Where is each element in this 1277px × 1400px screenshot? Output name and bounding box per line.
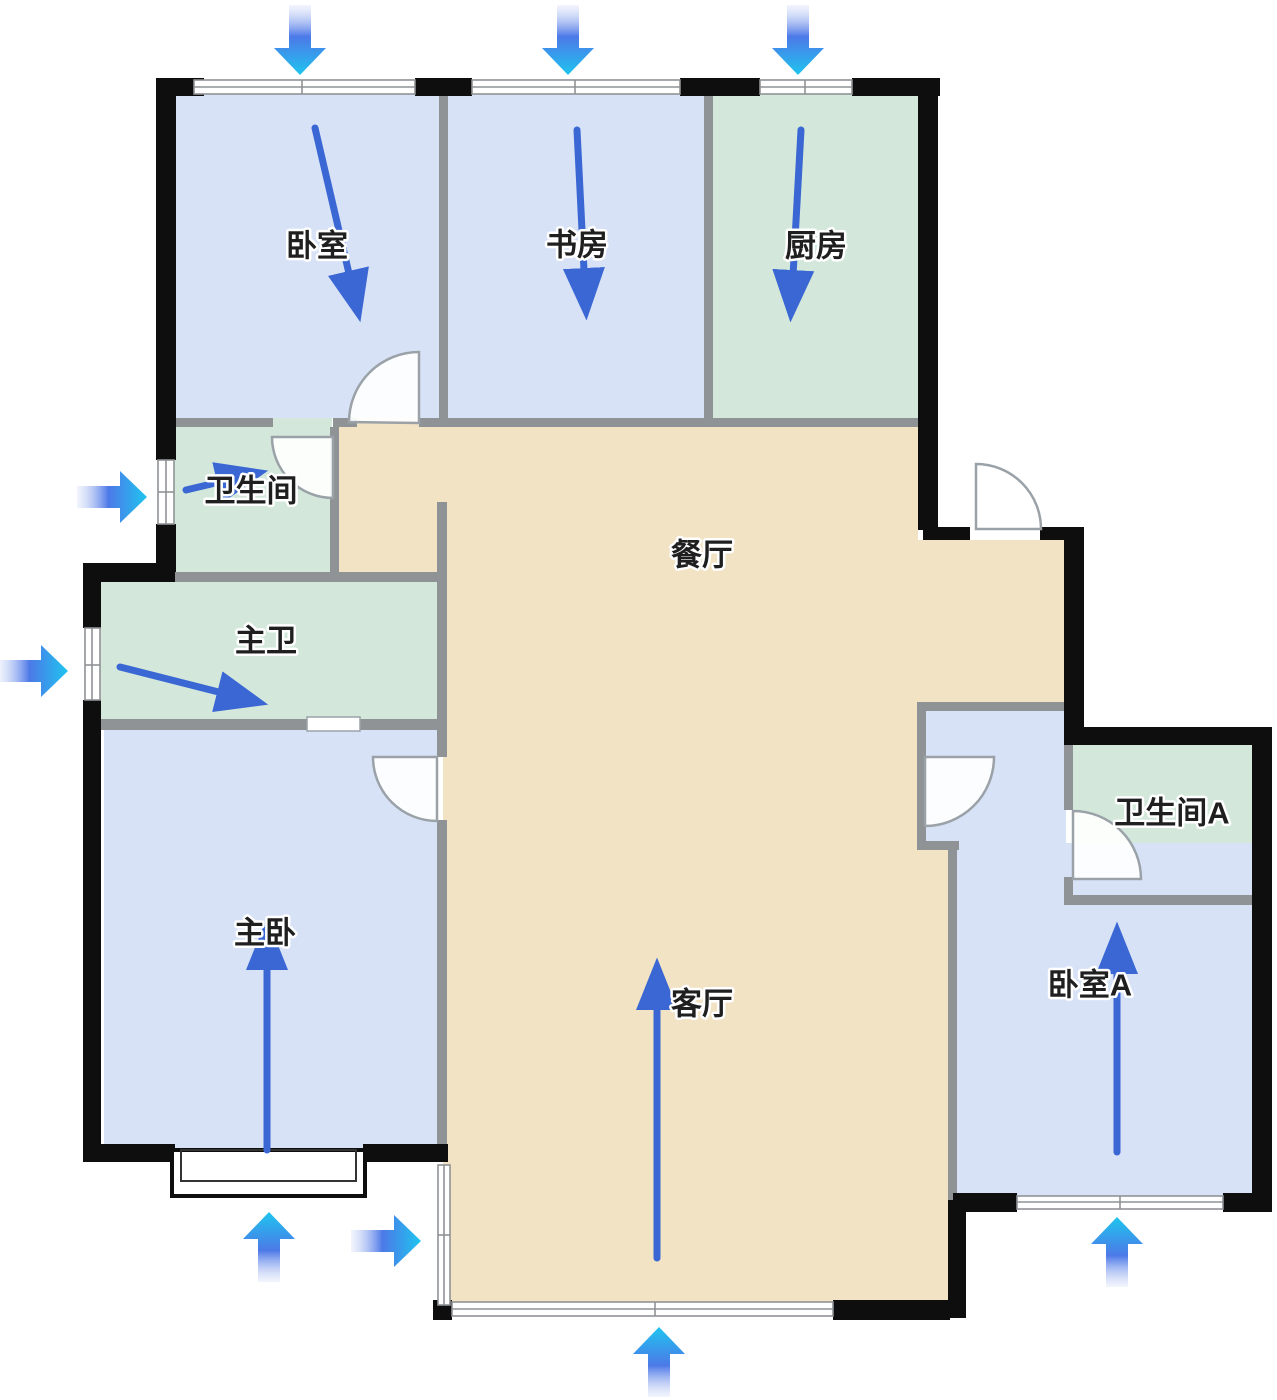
exterior-arrow-left-right-icon <box>0 645 68 697</box>
exterior-arrow-bottom-up-icon <box>243 1212 295 1282</box>
room-label-bathroom-a: 卫生间A <box>1114 796 1229 831</box>
bay-window <box>172 1150 365 1196</box>
exterior-arrow-bottom-up-icon <box>1091 1217 1143 1287</box>
floor-plan-canvas: 卧室 书房 厨房 卫生间 主卫 餐厅 主卧 客厅 卫生间A 卧室A <box>0 0 1277 1400</box>
room-label-bedroom-a: 卧室A <box>1048 968 1132 1003</box>
window <box>472 80 680 94</box>
wall-segment <box>83 1144 175 1162</box>
room-label-living: 客厅 <box>671 987 733 1022</box>
window <box>85 628 100 700</box>
wall-segment <box>83 700 101 1162</box>
wall-segment <box>170 572 447 582</box>
exterior-arrow-top-down-icon <box>542 5 594 75</box>
exterior-arrow-left-right-icon <box>77 471 147 523</box>
wall-segment <box>1064 540 1084 727</box>
wall-segment <box>439 94 448 427</box>
wall-segment <box>156 78 176 460</box>
wall-segment <box>95 719 307 730</box>
floor-plan: 卧室 书房 厨房 卫生间 主卫 餐厅 主卧 客厅 卫生间A 卧室A <box>0 0 1277 1400</box>
wall-segment <box>1064 895 1262 905</box>
wall-segment <box>923 527 970 540</box>
window <box>194 80 415 94</box>
wall-segment <box>419 418 918 427</box>
room-label-master-bedroom: 主卧 <box>234 916 296 951</box>
window <box>452 1302 833 1316</box>
wall-segment <box>1064 727 1272 745</box>
wall-segment <box>437 820 447 1157</box>
exterior-arrow-bottom-up-icon <box>633 1327 685 1397</box>
room-label-master-bath: 主卫 <box>235 624 297 659</box>
wall-segment <box>948 1200 966 1318</box>
wall-segment <box>953 1193 1017 1212</box>
wall-segment <box>360 719 437 730</box>
exterior-arrow-top-down-icon <box>772 5 824 75</box>
door-entrance <box>976 464 1041 529</box>
room-label-bedroom: 卧室 <box>286 229 348 264</box>
room-label-study: 书房 <box>546 228 608 263</box>
wall-segment <box>1252 727 1272 1212</box>
window <box>1017 1196 1223 1209</box>
exterior-arrow-bottom-right-icon <box>351 1215 421 1267</box>
wall-segment <box>415 78 472 96</box>
wall-segment <box>83 563 101 628</box>
window <box>760 80 852 94</box>
wall-segment <box>437 502 447 757</box>
window <box>438 1165 450 1305</box>
exterior-arrow-top-down-icon <box>274 5 326 75</box>
wall-segment <box>704 94 713 427</box>
wall-segment <box>363 1144 448 1162</box>
wall-segment <box>833 1300 950 1320</box>
room-label-kitchen: 厨房 <box>785 229 847 264</box>
room-label-dining: 餐厅 <box>671 538 733 573</box>
wall-segment <box>160 418 273 427</box>
wall-segment <box>948 841 957 1210</box>
wall-segment <box>918 78 938 530</box>
window <box>158 460 174 524</box>
wall-segment <box>680 78 760 96</box>
wall-segment <box>1064 745 1073 810</box>
room-label-bathroom: 卫生间 <box>205 474 298 509</box>
door-master-bath <box>307 717 360 731</box>
wall-segment <box>921 702 1066 711</box>
wall-segment <box>1040 527 1084 540</box>
